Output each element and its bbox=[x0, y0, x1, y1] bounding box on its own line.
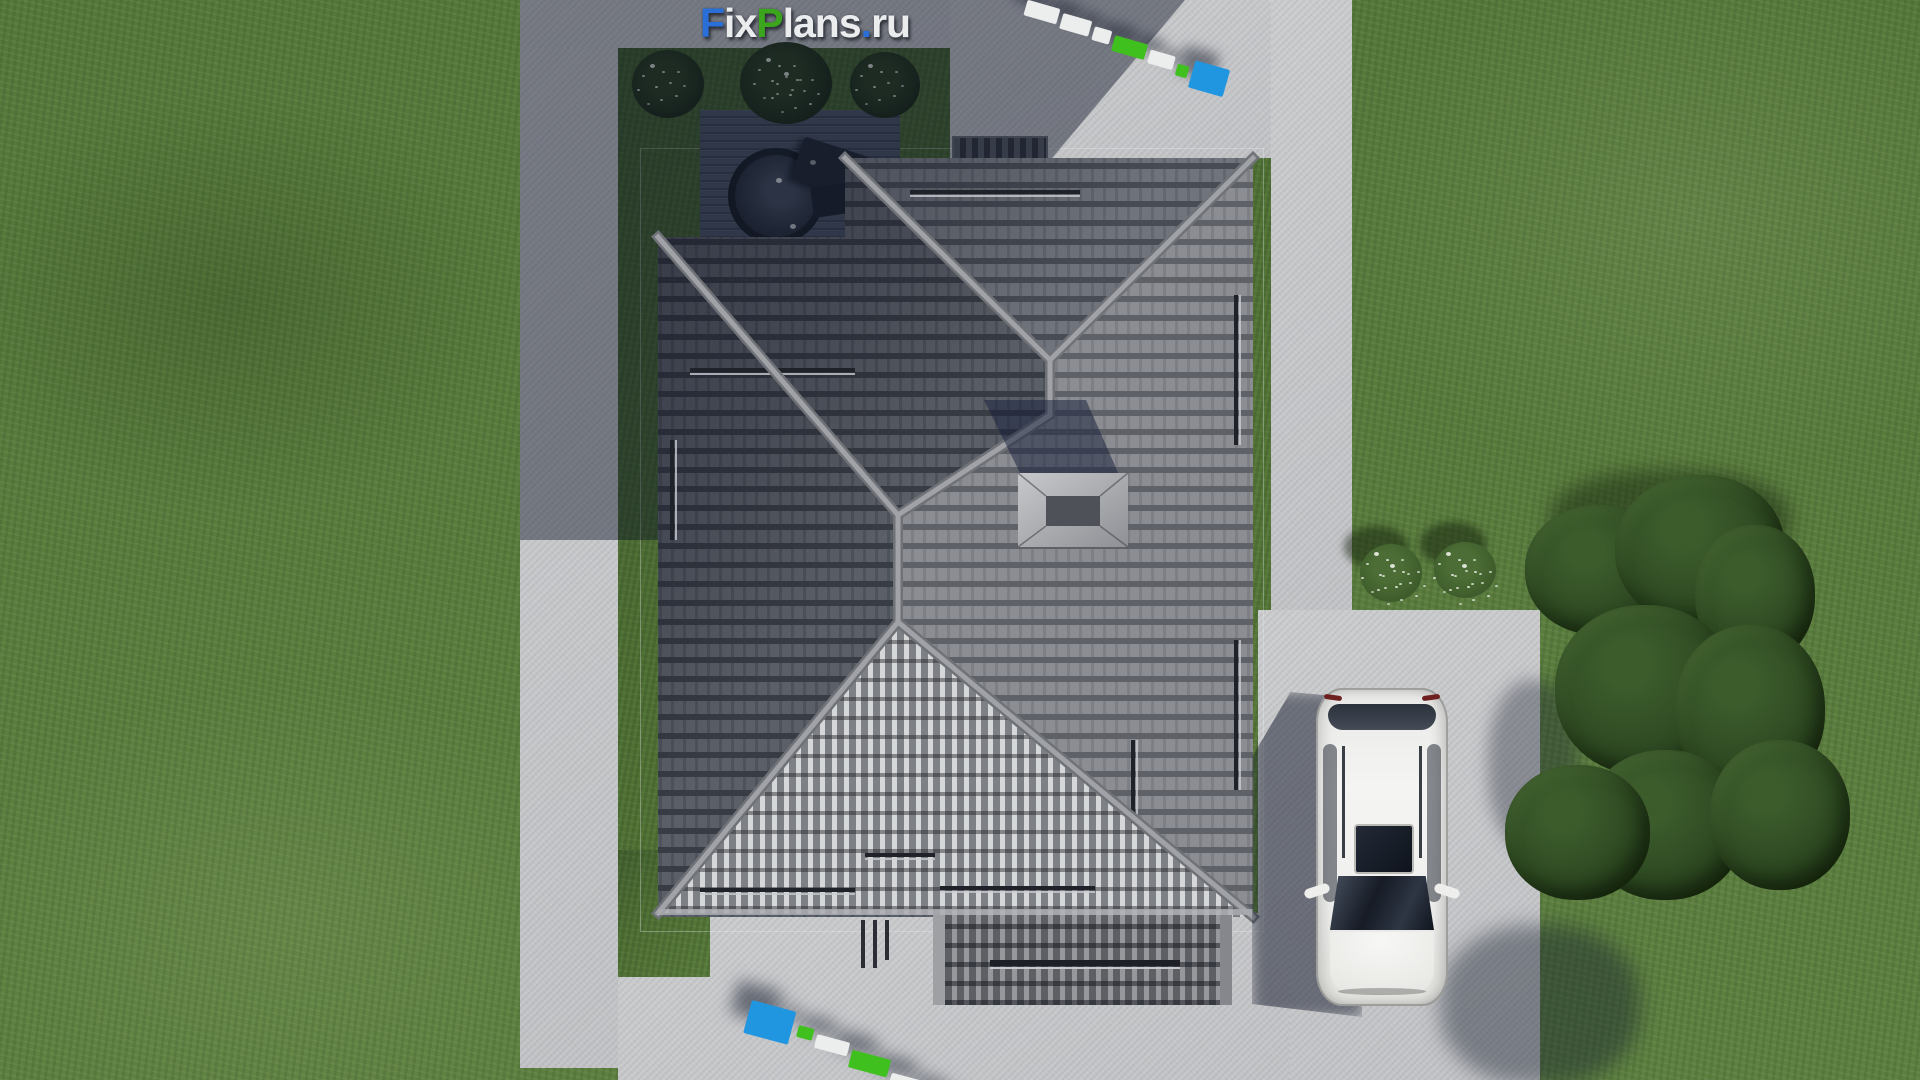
car-hood bbox=[1330, 932, 1434, 994]
right-path bbox=[1271, 0, 1352, 612]
logo-part: P bbox=[756, 0, 782, 46]
tree-shadow bbox=[1440, 925, 1640, 1080]
roof-light-falloff bbox=[650, 150, 1260, 1010]
car bbox=[1316, 688, 1448, 1006]
flower-bush bbox=[1434, 542, 1496, 598]
eave-gutter bbox=[658, 909, 1253, 915]
house-roof bbox=[650, 150, 1260, 1010]
aerial-render-scene: FixPlans.ru bbox=[0, 0, 1920, 1080]
porch-step-marks bbox=[861, 920, 889, 968]
car-side-window bbox=[1323, 744, 1337, 902]
logo-part: . bbox=[861, 0, 871, 46]
flower-bush bbox=[1360, 544, 1422, 602]
car-roof-rail bbox=[1342, 746, 1345, 858]
logo-part: F bbox=[700, 0, 724, 46]
car-windshield bbox=[1330, 876, 1434, 930]
car-taillight bbox=[1324, 694, 1343, 701]
logo-part: ru bbox=[871, 0, 910, 46]
car-taillight bbox=[1422, 694, 1441, 701]
car-roof-rail bbox=[1419, 746, 1422, 858]
site-logo: FixPlans.ru bbox=[700, 0, 910, 47]
car-side-window bbox=[1427, 744, 1441, 902]
logo-part: lans bbox=[783, 0, 861, 46]
porch-roof bbox=[933, 915, 1232, 1005]
chimney-flue bbox=[1046, 496, 1100, 526]
large-tree bbox=[1495, 465, 1825, 935]
car-rear-window bbox=[1328, 704, 1436, 730]
logo-part: ix bbox=[724, 0, 756, 46]
car-grille bbox=[1338, 988, 1426, 995]
car-sunroof bbox=[1354, 824, 1414, 874]
